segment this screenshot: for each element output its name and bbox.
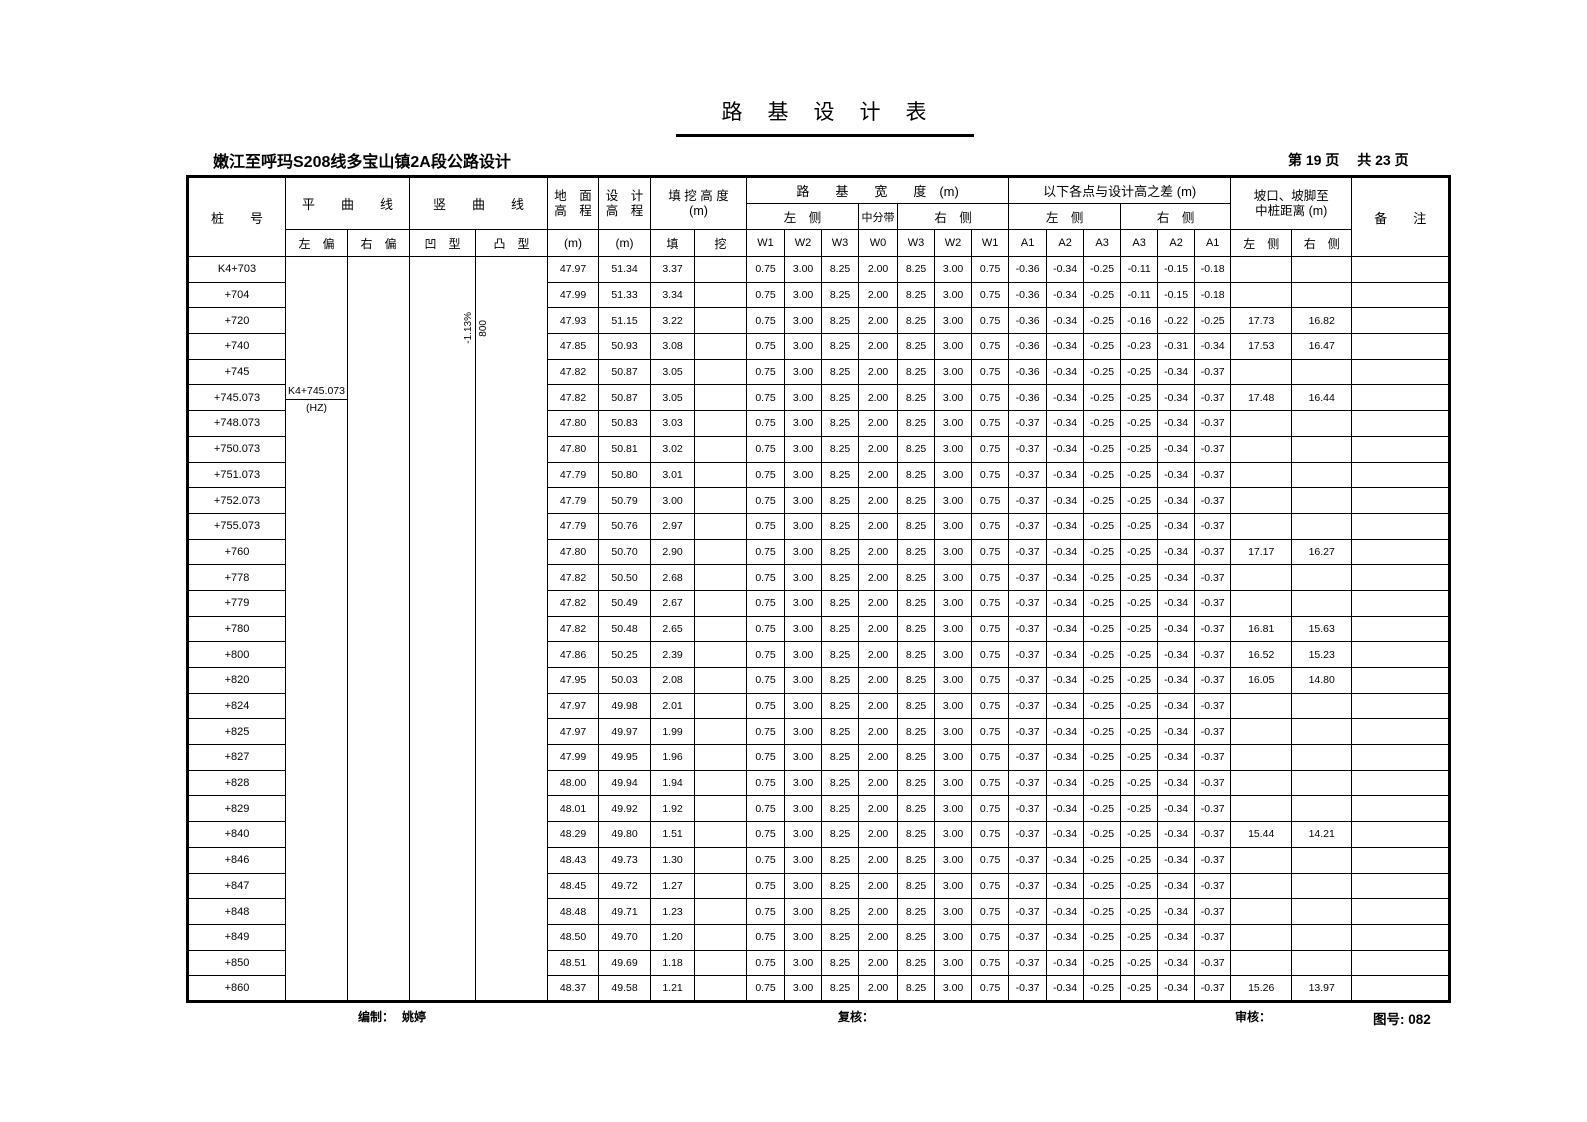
design-elevation-cell: 49.71 <box>599 899 651 925</box>
header-w2-right: W2 <box>935 230 972 257</box>
header-slope-line2: 中桩距离 (m) <box>1255 204 1327 218</box>
design-elevation-cell: 50.93 <box>599 334 651 360</box>
slope-distance-right-cell: 13.97 <box>1292 976 1352 1002</box>
stake-number-cell: +840 <box>188 822 286 848</box>
remark-cell <box>1352 462 1450 488</box>
design-elevation-cell: 49.97 <box>599 719 651 745</box>
width-w1-right-cell: 0.75 <box>972 359 1009 385</box>
slope-distance-left-cell: 16.81 <box>1231 616 1292 642</box>
diff-a3-left-cell: -0.25 <box>1084 411 1121 437</box>
page-number-info: 第 19 页 共 23 页 <box>1288 150 1409 170</box>
diff-a3-right-cell: -0.25 <box>1121 411 1158 437</box>
width-w3-right-cell: 8.25 <box>898 770 935 796</box>
width-w1-right-cell: 0.75 <box>972 411 1009 437</box>
width-w1-right-cell: 0.75 <box>972 488 1009 514</box>
cut-height-cell <box>695 308 747 334</box>
diff-a2-right-cell: -0.34 <box>1158 539 1195 565</box>
width-w1-left-cell: 0.75 <box>747 899 785 925</box>
slope-distance-right-cell <box>1292 796 1352 822</box>
design-elevation-cell: 50.49 <box>599 590 651 616</box>
width-w2-right-cell: 3.00 <box>935 308 972 334</box>
header-slope-distance-group: 坡口、坡脚至 中桩距离 (m) <box>1231 177 1352 230</box>
diff-a1-right-cell: -0.37 <box>1195 565 1231 591</box>
header-design-line1: 设 计 <box>606 189 644 203</box>
width-w3-right-cell: 8.25 <box>898 847 935 873</box>
slope-distance-left-cell <box>1231 873 1292 899</box>
review-label: 复核： <box>838 1010 874 1024</box>
diff-a3-left-cell: -0.25 <box>1084 616 1121 642</box>
stake-number-cell: +750.073 <box>188 436 286 462</box>
fill-height-cell: 2.65 <box>651 616 695 642</box>
diff-a2-right-cell: -0.34 <box>1158 359 1195 385</box>
width-w3-left-cell: 8.25 <box>822 462 859 488</box>
width-w3-left-cell: 8.25 <box>822 924 859 950</box>
width-w1-left-cell: 0.75 <box>747 513 785 539</box>
diff-a2-left-cell: -0.34 <box>1047 873 1084 899</box>
fill-height-cell: 2.39 <box>651 642 695 668</box>
header-stake: 桩 号 <box>188 177 286 257</box>
stake-number-cell: +704 <box>188 282 286 308</box>
diff-a1-right-cell: -0.37 <box>1195 411 1231 437</box>
width-w1-left-cell: 0.75 <box>747 616 785 642</box>
header-diff-left-side: 左 侧 <box>1009 204 1121 230</box>
slope-distance-left-cell: 17.17 <box>1231 539 1292 565</box>
design-elevation-cell: 49.92 <box>599 796 651 822</box>
remark-cell <box>1352 796 1450 822</box>
diff-a2-right-cell: -0.31 <box>1158 334 1195 360</box>
width-w0-median-cell: 2.00 <box>859 642 898 668</box>
diff-a2-left-cell: -0.34 <box>1047 590 1084 616</box>
compiled-name: 姚婷 <box>402 1010 426 1024</box>
diff-a2-right-cell: -0.34 <box>1158 873 1195 899</box>
diff-a3-left-cell: -0.25 <box>1084 668 1121 694</box>
fill-height-cell: 3.02 <box>651 436 695 462</box>
diff-a3-left-cell: -0.25 <box>1084 976 1121 1002</box>
ground-elevation-cell: 47.79 <box>548 462 599 488</box>
width-w0-median-cell: 2.00 <box>859 513 898 539</box>
width-w3-left-cell: 8.25 <box>822 770 859 796</box>
width-w2-right-cell: 3.00 <box>935 359 972 385</box>
width-w2-left-cell: 3.00 <box>785 745 822 771</box>
width-w1-left-cell: 0.75 <box>747 308 785 334</box>
slope-distance-right-cell: 16.82 <box>1292 308 1352 334</box>
width-w3-left-cell: 8.25 <box>822 411 859 437</box>
width-w3-right-cell: 8.25 <box>898 693 935 719</box>
width-w3-left-cell: 8.25 <box>822 642 859 668</box>
diff-a2-right-cell: -0.34 <box>1158 616 1195 642</box>
cut-height-cell <box>695 822 747 848</box>
diff-a3-left-cell: -0.25 <box>1084 257 1121 283</box>
diff-a1-left-cell: -0.37 <box>1009 411 1047 437</box>
width-w2-right-cell: 3.00 <box>935 693 972 719</box>
remark-cell <box>1352 899 1450 925</box>
width-w3-left-cell: 8.25 <box>822 488 859 514</box>
fill-height-cell: 3.00 <box>651 488 695 514</box>
fill-height-cell: 1.23 <box>651 899 695 925</box>
diff-a3-left-cell: -0.25 <box>1084 565 1121 591</box>
cut-height-cell <box>695 693 747 719</box>
ground-elevation-cell: 48.00 <box>548 770 599 796</box>
design-elevation-cell: 49.72 <box>599 873 651 899</box>
project-subtitle: 嫩江至呼玛S208线多宝山镇2A段公路设计 <box>213 148 511 172</box>
width-w3-right-cell: 8.25 <box>898 565 935 591</box>
width-w1-right-cell: 0.75 <box>972 924 1009 950</box>
slope-distance-left-cell <box>1231 462 1292 488</box>
width-w1-left-cell: 0.75 <box>747 488 785 514</box>
width-w1-left-cell: 0.75 <box>747 745 785 771</box>
hz-mark: (HZ) <box>286 400 347 415</box>
ground-elevation-cell: 47.82 <box>548 616 599 642</box>
remark-cell <box>1352 770 1450 796</box>
width-w1-left-cell: 0.75 <box>747 822 785 848</box>
width-w2-left-cell: 3.00 <box>785 308 822 334</box>
slope-distance-right-cell <box>1292 282 1352 308</box>
fill-height-cell: 1.30 <box>651 847 695 873</box>
width-w1-left-cell: 0.75 <box>747 642 785 668</box>
remark-cell <box>1352 616 1450 642</box>
header-slope-right: 右 侧 <box>1292 230 1352 257</box>
width-w1-right-cell: 0.75 <box>972 822 1009 848</box>
remark-cell <box>1352 513 1450 539</box>
cut-height-cell <box>695 385 747 411</box>
width-w2-right-cell: 3.00 <box>935 668 972 694</box>
footer-drawing-number: 图号: 082 <box>1373 1008 1431 1028</box>
slope-distance-right-cell <box>1292 436 1352 462</box>
diff-a1-left-cell: -0.36 <box>1009 282 1047 308</box>
width-w2-right-cell: 3.00 <box>935 822 972 848</box>
design-elevation-cell: 49.80 <box>599 822 651 848</box>
width-w2-right-cell: 3.00 <box>935 745 972 771</box>
diff-a3-right-cell: -0.25 <box>1121 616 1158 642</box>
fill-height-cell: 1.51 <box>651 822 695 848</box>
width-w2-right-cell: 3.00 <box>935 924 972 950</box>
diff-a3-left-cell: -0.25 <box>1084 539 1121 565</box>
diff-a3-right-cell: -0.25 <box>1121 976 1158 1002</box>
stake-number-cell: +748.073 <box>188 411 286 437</box>
header-a3-left: A3 <box>1084 230 1121 257</box>
design-elevation-cell: 49.94 <box>599 770 651 796</box>
slope-distance-right-cell: 16.47 <box>1292 334 1352 360</box>
width-w2-left-cell: 3.00 <box>785 565 822 591</box>
diff-a1-left-cell: -0.37 <box>1009 719 1047 745</box>
diff-a2-right-cell: -0.34 <box>1158 770 1195 796</box>
slope-distance-left-cell: 15.26 <box>1231 976 1292 1002</box>
width-w1-right-cell: 0.75 <box>972 565 1009 591</box>
diff-a3-left-cell: -0.25 <box>1084 693 1121 719</box>
fill-height-cell: 1.99 <box>651 719 695 745</box>
stake-number-cell: +824 <box>188 693 286 719</box>
diff-a2-right-cell: -0.34 <box>1158 899 1195 925</box>
width-w1-left-cell: 0.75 <box>747 385 785 411</box>
width-w1-left-cell: 0.75 <box>747 539 785 565</box>
width-w3-right-cell: 8.25 <box>898 334 935 360</box>
width-w1-right-cell: 0.75 <box>972 796 1009 822</box>
diff-a2-right-cell: -0.34 <box>1158 385 1195 411</box>
remark-cell <box>1352 282 1450 308</box>
slope-distance-left-cell <box>1231 950 1292 976</box>
diff-a1-left-cell: -0.37 <box>1009 616 1047 642</box>
width-w3-left-cell: 8.25 <box>822 385 859 411</box>
header-design-unit: (m) <box>599 230 651 257</box>
width-w3-right-cell: 8.25 <box>898 462 935 488</box>
slope-distance-left-cell: 17.73 <box>1231 308 1292 334</box>
diff-a2-right-cell: -0.34 <box>1158 924 1195 950</box>
ground-elevation-cell: 48.50 <box>548 924 599 950</box>
header-ground-unit: (m) <box>548 230 599 257</box>
width-w1-left-cell: 0.75 <box>747 719 785 745</box>
diff-a3-right-cell: -0.25 <box>1121 899 1158 925</box>
diff-a1-right-cell: -0.18 <box>1195 257 1231 283</box>
header-a3-right: A3 <box>1121 230 1158 257</box>
diff-a2-left-cell: -0.34 <box>1047 513 1084 539</box>
diff-a1-right-cell: -0.37 <box>1195 745 1231 771</box>
slope-distance-right-cell: 16.27 <box>1292 539 1352 565</box>
stake-number-cell: +825 <box>188 719 286 745</box>
diff-a2-right-cell: -0.34 <box>1158 950 1195 976</box>
stake-number-cell: +760 <box>188 539 286 565</box>
remark-cell <box>1352 693 1450 719</box>
ground-elevation-cell: 48.45 <box>548 873 599 899</box>
diff-a3-right-cell: -0.25 <box>1121 719 1158 745</box>
width-w0-median-cell: 2.00 <box>859 565 898 591</box>
fill-height-cell: 1.18 <box>651 950 695 976</box>
header-design-elevation: 设 计 高 程 <box>599 177 651 230</box>
width-w3-right-cell: 8.25 <box>898 719 935 745</box>
fill-height-cell: 3.01 <box>651 462 695 488</box>
remark-cell <box>1352 950 1450 976</box>
diff-a2-right-cell: -0.34 <box>1158 488 1195 514</box>
slope-distance-right-cell: 15.23 <box>1292 642 1352 668</box>
remark-cell <box>1352 565 1450 591</box>
diff-a3-right-cell: -0.25 <box>1121 770 1158 796</box>
fill-height-cell: 2.01 <box>651 693 695 719</box>
diff-a1-right-cell: -0.37 <box>1195 616 1231 642</box>
diff-a3-right-cell: -0.25 <box>1121 436 1158 462</box>
diff-a2-left-cell: -0.34 <box>1047 308 1084 334</box>
diff-a1-right-cell: -0.37 <box>1195 899 1231 925</box>
header-w3-left: W3 <box>822 230 859 257</box>
diff-a1-right-cell: -0.37 <box>1195 488 1231 514</box>
diff-a2-left-cell: -0.34 <box>1047 565 1084 591</box>
remark-cell <box>1352 590 1450 616</box>
width-w3-right-cell: 8.25 <box>898 950 935 976</box>
design-elevation-cell: 50.03 <box>599 668 651 694</box>
width-w2-left-cell: 3.00 <box>785 642 822 668</box>
diff-a2-left-cell: -0.34 <box>1047 642 1084 668</box>
diff-a3-left-cell: -0.25 <box>1084 436 1121 462</box>
width-w0-median-cell: 2.00 <box>859 385 898 411</box>
diff-a2-right-cell: -0.34 <box>1158 847 1195 873</box>
diff-a1-right-cell: -0.37 <box>1195 950 1231 976</box>
ground-elevation-cell: 48.43 <box>548 847 599 873</box>
header-fillcut-line2: (m) <box>689 204 708 218</box>
slope-distance-left-cell <box>1231 899 1292 925</box>
stake-number-cell: +827 <box>188 745 286 771</box>
diff-a2-right-cell: -0.34 <box>1158 745 1195 771</box>
fill-height-cell: 1.92 <box>651 796 695 822</box>
slope-distance-right-cell <box>1292 924 1352 950</box>
remark-cell <box>1352 385 1450 411</box>
diff-a3-left-cell: -0.25 <box>1084 924 1121 950</box>
diff-a1-left-cell: -0.36 <box>1009 308 1047 334</box>
design-elevation-cell: 49.58 <box>599 976 651 1002</box>
width-w0-median-cell: 2.00 <box>859 359 898 385</box>
vertical-curve-grade: -1.13% <box>463 312 474 344</box>
width-w3-left-cell: 8.25 <box>822 745 859 771</box>
diff-a2-left-cell: -0.34 <box>1047 436 1084 462</box>
stake-number-cell: +829 <box>188 796 286 822</box>
width-w0-median-cell: 2.00 <box>859 488 898 514</box>
width-w1-right-cell: 0.75 <box>972 334 1009 360</box>
diff-a1-left-cell: -0.37 <box>1009 590 1047 616</box>
diff-a1-left-cell: -0.37 <box>1009 950 1047 976</box>
ground-elevation-cell: 47.82 <box>548 565 599 591</box>
width-w3-left-cell: 8.25 <box>822 693 859 719</box>
header-horizontal-curve: 平 曲 线 <box>286 177 410 230</box>
width-w0-median-cell: 2.00 <box>859 308 898 334</box>
ground-elevation-cell: 47.95 <box>548 668 599 694</box>
diff-a1-right-cell: -0.25 <box>1195 308 1231 334</box>
fill-height-cell: 3.22 <box>651 308 695 334</box>
slope-distance-left-cell <box>1231 770 1292 796</box>
width-w0-median-cell: 2.00 <box>859 539 898 565</box>
slope-distance-right-cell: 14.80 <box>1292 668 1352 694</box>
width-w1-left-cell: 0.75 <box>747 462 785 488</box>
vertical-curve-radius: 800 <box>478 320 489 337</box>
width-w1-right-cell: 0.75 <box>972 668 1009 694</box>
diff-a1-right-cell: -0.37 <box>1195 719 1231 745</box>
width-w2-left-cell: 3.00 <box>785 359 822 385</box>
design-elevation-cell: 50.70 <box>599 539 651 565</box>
width-w3-left-cell: 8.25 <box>822 565 859 591</box>
stake-number-cell: +751.073 <box>188 462 286 488</box>
cut-height-cell <box>695 513 747 539</box>
remark-cell <box>1352 668 1450 694</box>
diff-a2-right-cell: -0.34 <box>1158 462 1195 488</box>
fill-height-cell: 1.21 <box>651 976 695 1002</box>
diff-a1-right-cell: -0.37 <box>1195 924 1231 950</box>
width-w3-left-cell: 8.25 <box>822 257 859 283</box>
diff-a1-right-cell: -0.37 <box>1195 385 1231 411</box>
diff-a2-right-cell: -0.34 <box>1158 693 1195 719</box>
stake-number-cell: +778 <box>188 565 286 591</box>
diff-a1-right-cell: -0.37 <box>1195 513 1231 539</box>
width-w3-right-cell: 8.25 <box>898 436 935 462</box>
remark-cell <box>1352 976 1450 1002</box>
diff-a2-right-cell: -0.34 <box>1158 976 1195 1002</box>
remark-cell <box>1352 847 1450 873</box>
width-w3-right-cell: 8.25 <box>898 539 935 565</box>
stake-number-cell: +847 <box>188 873 286 899</box>
width-w3-left-cell: 8.25 <box>822 873 859 899</box>
diff-a3-right-cell: -0.25 <box>1121 539 1158 565</box>
diff-a3-left-cell: -0.25 <box>1084 308 1121 334</box>
stake-number-cell: +720 <box>188 308 286 334</box>
width-w2-right-cell: 3.00 <box>935 642 972 668</box>
slope-distance-left-cell <box>1231 282 1292 308</box>
design-elevation-cell: 49.98 <box>599 693 651 719</box>
diff-a3-left-cell: -0.25 <box>1084 642 1121 668</box>
width-w1-left-cell: 0.75 <box>747 950 785 976</box>
diff-a1-left-cell: -0.37 <box>1009 899 1047 925</box>
width-w3-right-cell: 8.25 <box>898 668 935 694</box>
header-fill: 填 <box>651 230 695 257</box>
diff-a2-left-cell: -0.34 <box>1047 334 1084 360</box>
design-elevation-cell: 51.33 <box>599 282 651 308</box>
stake-number-cell: +745 <box>188 359 286 385</box>
width-w1-left-cell: 0.75 <box>747 668 785 694</box>
width-w2-left-cell: 3.00 <box>785 950 822 976</box>
width-w0-median-cell: 2.00 <box>859 770 898 796</box>
ground-elevation-cell: 47.99 <box>548 745 599 771</box>
ground-elevation-cell: 47.93 <box>548 308 599 334</box>
width-w0-median-cell: 2.00 <box>859 719 898 745</box>
width-w1-right-cell: 0.75 <box>972 950 1009 976</box>
h-curve-left-deviation-column: K4+745.073(HZ) <box>286 257 348 1002</box>
diff-a1-left-cell: -0.37 <box>1009 642 1047 668</box>
width-w3-left-cell: 8.25 <box>822 822 859 848</box>
ground-elevation-cell: 48.51 <box>548 950 599 976</box>
slope-distance-right-cell <box>1292 488 1352 514</box>
v-curve-convex-column: 800 <box>476 257 548 1002</box>
width-w2-left-cell: 3.00 <box>785 822 822 848</box>
cut-height-cell <box>695 488 747 514</box>
remark-cell <box>1352 745 1450 771</box>
stake-number-cell: +846 <box>188 847 286 873</box>
diff-a2-right-cell: -0.34 <box>1158 822 1195 848</box>
design-elevation-cell: 50.87 <box>599 385 651 411</box>
diff-a1-right-cell: -0.37 <box>1195 693 1231 719</box>
slope-distance-left-cell <box>1231 359 1292 385</box>
width-w1-right-cell: 0.75 <box>972 847 1009 873</box>
diff-a2-left-cell: -0.34 <box>1047 539 1084 565</box>
fill-height-cell: 3.05 <box>651 385 695 411</box>
header-curve-left-deviation: 左 偏 <box>286 230 348 257</box>
design-elevation-cell: 50.81 <box>599 436 651 462</box>
diff-a3-right-cell: -0.25 <box>1121 642 1158 668</box>
width-w2-left-cell: 3.00 <box>785 436 822 462</box>
diff-a1-left-cell: -0.37 <box>1009 462 1047 488</box>
width-w0-median-cell: 2.00 <box>859 334 898 360</box>
diff-a1-left-cell: -0.37 <box>1009 796 1047 822</box>
width-w2-left-cell: 3.00 <box>785 873 822 899</box>
diff-a3-left-cell: -0.25 <box>1084 796 1121 822</box>
width-w0-median-cell: 2.00 <box>859 976 898 1002</box>
diff-a1-left-cell: -0.37 <box>1009 539 1047 565</box>
diff-a1-left-cell: -0.37 <box>1009 668 1047 694</box>
cut-height-cell <box>695 257 747 283</box>
diff-a1-left-cell: -0.37 <box>1009 745 1047 771</box>
drawing-number-label: 图号: <box>1373 1012 1408 1027</box>
remark-cell <box>1352 719 1450 745</box>
slope-distance-right-cell <box>1292 693 1352 719</box>
width-w3-right-cell: 8.25 <box>898 642 935 668</box>
diff-a1-right-cell: -0.37 <box>1195 359 1231 385</box>
fill-height-cell: 3.03 <box>651 411 695 437</box>
width-w0-median-cell: 2.00 <box>859 847 898 873</box>
width-w1-left-cell: 0.75 <box>747 436 785 462</box>
design-elevation-cell: 51.15 <box>599 308 651 334</box>
hz-station: K4+745.073 <box>286 384 347 400</box>
diff-a3-right-cell: -0.25 <box>1121 847 1158 873</box>
diff-a3-right-cell: -0.25 <box>1121 565 1158 591</box>
width-w3-right-cell: 8.25 <box>898 513 935 539</box>
cut-height-cell <box>695 899 747 925</box>
cut-height-cell <box>695 873 747 899</box>
width-w2-left-cell: 3.00 <box>785 924 822 950</box>
diff-a3-left-cell: -0.25 <box>1084 385 1121 411</box>
design-elevation-cell: 50.76 <box>599 513 651 539</box>
